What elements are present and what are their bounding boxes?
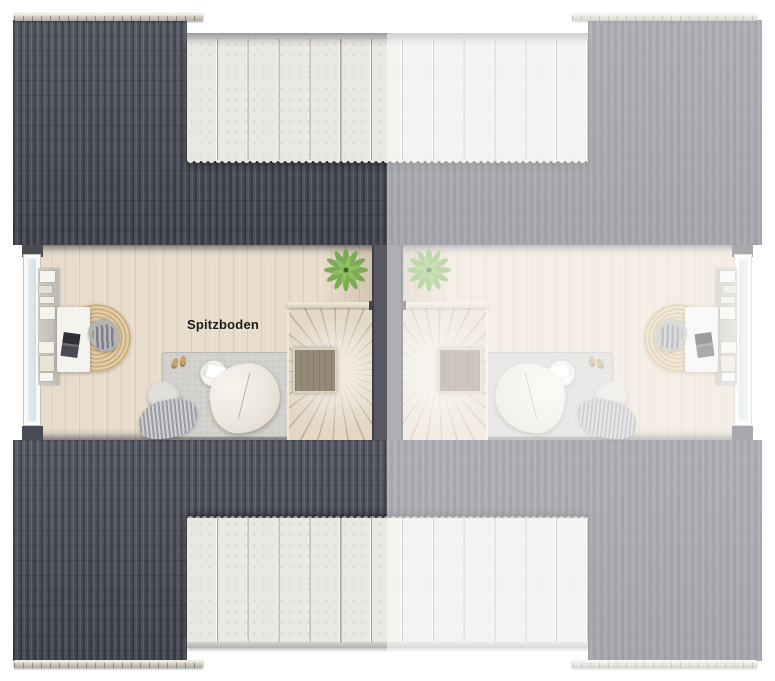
laptop xyxy=(60,332,80,358)
book-stack xyxy=(40,271,55,282)
slipper xyxy=(170,357,179,369)
book-stack xyxy=(39,342,54,353)
fern-icon xyxy=(323,247,369,291)
potted-plant xyxy=(323,247,369,291)
window-glass xyxy=(28,259,36,421)
book-stack xyxy=(40,307,55,319)
staircase xyxy=(287,302,373,440)
book-stack xyxy=(40,373,53,381)
stair-void xyxy=(293,348,337,393)
area-rug xyxy=(162,352,290,437)
wall-stub-bottom xyxy=(22,426,43,440)
slipper xyxy=(179,356,186,368)
pillow-striped xyxy=(134,392,202,445)
room-label: Spitzboden xyxy=(186,317,260,333)
floorplan-canvas: Spitzboden xyxy=(0,0,775,681)
stair-handrail xyxy=(287,302,375,308)
ridge-cap-top-left xyxy=(14,13,203,21)
book-stack xyxy=(40,356,54,371)
unit-left xyxy=(23,245,373,440)
book-stack xyxy=(40,297,54,303)
fade-overlay xyxy=(387,0,775,681)
eave-cap-bottom-left xyxy=(14,660,203,668)
book-stack xyxy=(39,286,52,293)
